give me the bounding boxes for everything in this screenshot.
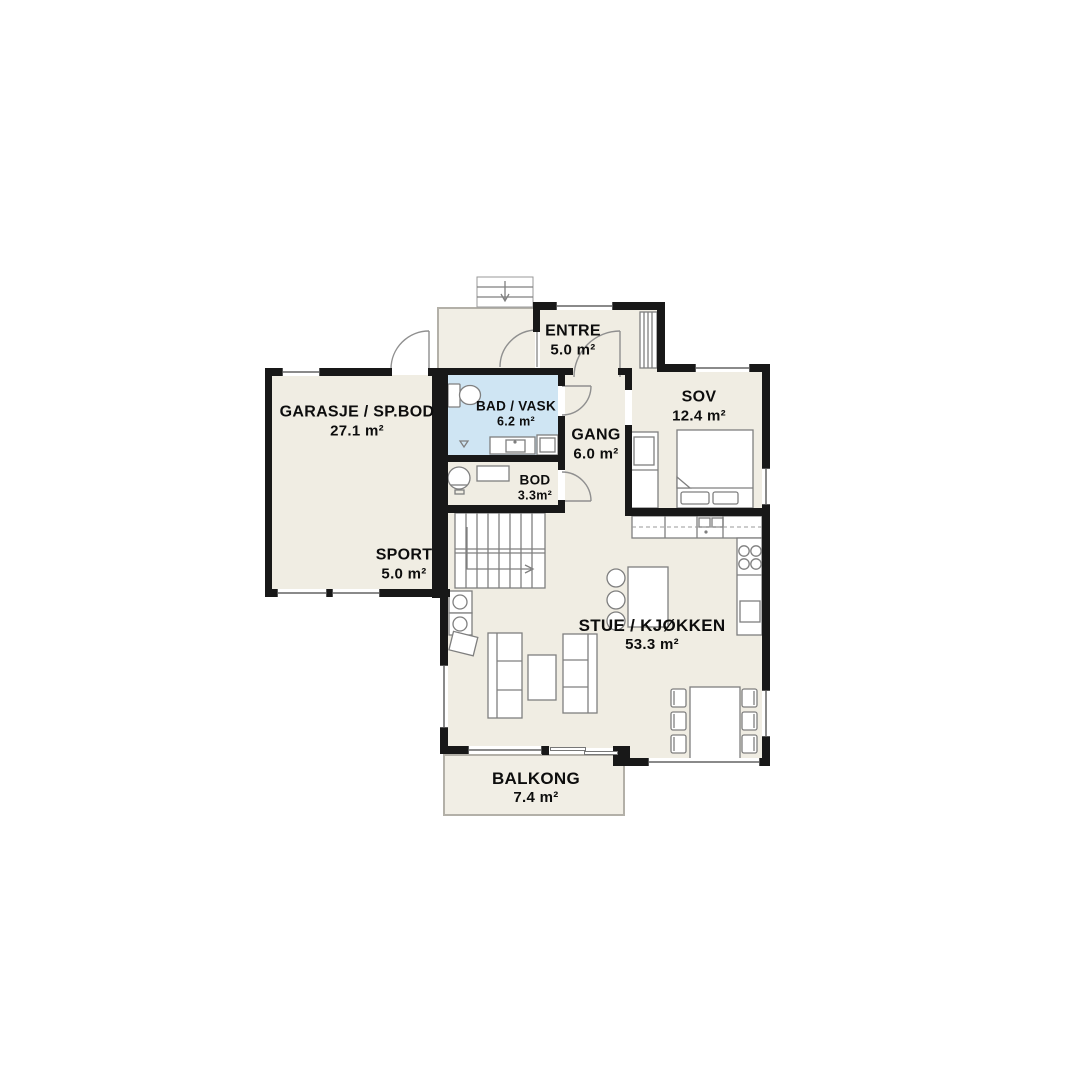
dining-chair <box>742 735 757 753</box>
room-name: BAD / VASK <box>476 399 556 415</box>
garage-door-arc <box>391 331 429 369</box>
window <box>332 589 380 597</box>
pillow <box>713 492 738 504</box>
wall <box>657 364 695 372</box>
dining-chair <box>742 689 757 707</box>
room-name: ENTRE <box>545 323 601 342</box>
pillow <box>681 492 709 504</box>
wall <box>762 364 770 468</box>
room-area: 5.0 m² <box>376 566 433 584</box>
entre-porch-door-arc <box>500 330 537 367</box>
wall <box>762 505 770 690</box>
sliding-door <box>584 751 618 755</box>
window <box>440 665 448 728</box>
dining-chair <box>742 712 757 730</box>
wood-stove <box>449 591 478 656</box>
wall <box>440 455 565 462</box>
wall <box>558 416 565 470</box>
dining-chair <box>671 735 686 753</box>
water-heater <box>448 467 470 494</box>
label-entre: ENTRE 5.0 m² <box>545 323 601 360</box>
sliding-door <box>550 747 586 751</box>
room-name: BALKONG <box>492 769 580 789</box>
room-area: 7.4 m² <box>492 789 580 807</box>
bed <box>677 430 753 508</box>
room-name: SPORT <box>376 547 433 566</box>
wall <box>440 596 448 665</box>
wall <box>542 746 549 755</box>
window <box>648 758 760 766</box>
wall <box>432 368 448 598</box>
wall <box>657 302 665 372</box>
wall <box>533 302 540 332</box>
room-name: STUE / KJØKKEN <box>579 616 726 636</box>
label-sport: SPORT 5.0 m² <box>376 547 433 584</box>
wall <box>625 368 632 390</box>
bod-shelf <box>477 466 509 481</box>
furniture-layer <box>0 0 1080 1080</box>
dining-set <box>671 687 757 759</box>
label-bod: BOD 3.3m² <box>518 473 552 504</box>
label-garasje: GARASJE / SP.BOD 27.1 m² <box>280 404 435 441</box>
wall <box>625 758 648 766</box>
room-area: 12.4 m² <box>672 408 726 426</box>
wall <box>320 368 392 376</box>
entre-closet <box>640 312 657 368</box>
wall <box>440 746 468 754</box>
wall <box>558 500 565 513</box>
window <box>282 368 320 376</box>
bad-door-arc <box>562 386 591 415</box>
room-area: 27.1 m² <box>280 423 435 441</box>
room-area: 6.0 m² <box>571 446 620 464</box>
bar-stool <box>607 591 625 609</box>
window <box>277 589 327 597</box>
floor-drain <box>460 441 468 447</box>
room-name: SOV <box>672 389 726 408</box>
wall <box>265 589 277 597</box>
floor-plan: GARASJE / SP.BOD 27.1 m² SPORT 5.0 m² EN… <box>0 0 1080 1080</box>
wall <box>440 505 565 513</box>
dining-chair <box>671 689 686 707</box>
entry-steps <box>477 277 533 307</box>
wall <box>760 758 770 766</box>
room-name: BOD <box>518 473 552 489</box>
bathroom-vanity <box>490 435 558 455</box>
dining-chair <box>671 712 686 730</box>
room-area: 6.2 m² <box>476 415 556 430</box>
wardrobe <box>630 432 658 508</box>
window <box>762 468 770 505</box>
label-bad-vask: BAD / VASK 6.2 m² <box>476 399 556 430</box>
staircase <box>455 513 545 588</box>
bar-stool <box>607 569 625 587</box>
label-balkong: BALKONG 7.4 m² <box>492 769 580 807</box>
label-gang: GANG 6.0 m² <box>571 427 620 464</box>
wall <box>265 368 272 596</box>
wall <box>437 368 573 375</box>
room-area: 3.3m² <box>518 489 552 504</box>
dining-table <box>690 687 740 759</box>
room-area: 5.0 m² <box>545 342 601 360</box>
bod-door-arc <box>562 472 591 501</box>
sofa-left <box>488 633 522 718</box>
room-name: GARASJE / SP.BOD <box>280 404 435 423</box>
window <box>762 690 770 737</box>
room-area: 53.3 m² <box>579 636 726 654</box>
window <box>695 364 750 372</box>
wall <box>625 425 632 508</box>
coffee-table <box>528 655 556 700</box>
room-name: GANG <box>571 427 620 446</box>
label-stue-kjokken: STUE / KJØKKEN 53.3 m² <box>579 616 726 654</box>
wall <box>625 508 770 516</box>
label-sov: SOV 12.4 m² <box>672 389 726 426</box>
window <box>468 746 542 754</box>
wall <box>558 372 565 386</box>
window <box>556 302 613 310</box>
